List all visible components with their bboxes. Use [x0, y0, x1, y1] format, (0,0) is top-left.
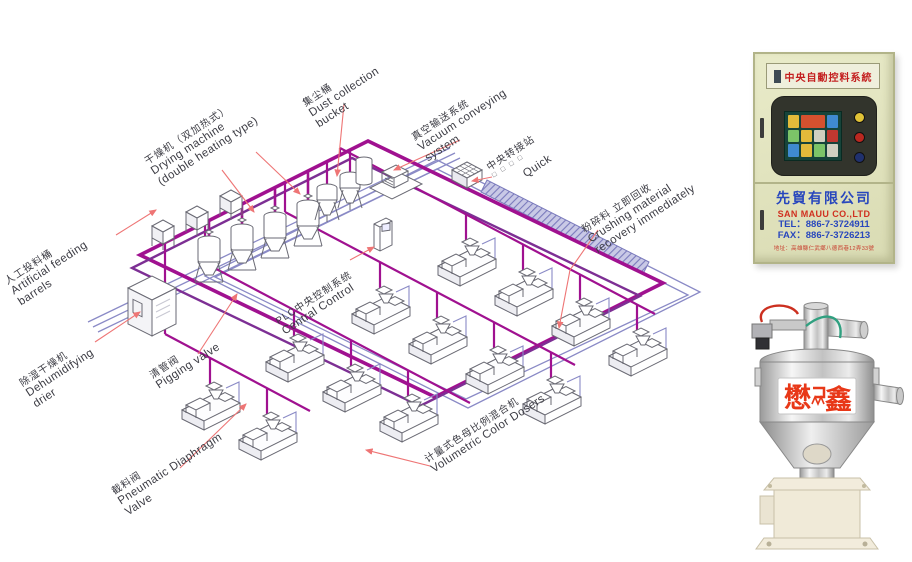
company-tel: TEL：886-7-3724911	[755, 219, 893, 230]
hopper-loader-photo: 懋 鑫	[712, 296, 912, 558]
blue-indicator-light	[854, 152, 865, 163]
cabinet-title-plate: 中央自動控料系統	[766, 63, 880, 89]
loader-top-piping	[804, 303, 868, 351]
company-name-en: SAN MAUU CO.,LTD	[755, 209, 893, 219]
yellow-indicator-light	[854, 112, 865, 123]
brand-char-left: 懋	[784, 383, 811, 413]
indicator-lights	[854, 112, 865, 163]
loader-cone	[760, 422, 874, 478]
company-info: 先貿有限公司 SAN MAUU CO.,LTD TEL：886-7-372491…	[755, 188, 893, 252]
control-cabinet-photo: 中央自動控料系統 先貿有限公司 SAN MAUU CO.,LTD TEL：886…	[753, 52, 895, 264]
molding-machine	[352, 286, 410, 334]
molding-machine	[466, 346, 524, 394]
loader-drum: 懋 鑫	[755, 349, 904, 422]
molding-machine	[239, 412, 297, 460]
dehumidifying-drier	[128, 276, 176, 336]
touch-screen	[784, 111, 842, 161]
cabinet-logo-chip	[774, 70, 781, 83]
equipment	[128, 157, 667, 460]
brand-char-right: 鑫	[825, 384, 852, 415]
page: 干燥机（双加热式） Drying machine (double heating…	[0, 0, 912, 562]
red-indicator-light	[854, 132, 865, 143]
cabinet-divider	[755, 182, 893, 184]
cabinet-title-text: 中央自動控料系統	[785, 69, 873, 84]
molding-machine	[609, 328, 667, 376]
molding-machine	[323, 364, 381, 412]
company-name-cn: 先貿有限公司	[755, 188, 893, 208]
molding-machine	[409, 316, 467, 364]
company-address: 地址：高雄縣仁武鄉八德西巷12弄33號	[755, 244, 893, 252]
molding-machine	[495, 268, 553, 316]
molding-machine	[552, 298, 610, 346]
hopper-loader-svg: 懋 鑫	[712, 296, 912, 558]
loader-base-stand	[756, 478, 878, 549]
molding-machine	[438, 238, 496, 286]
drying-hopper	[261, 206, 289, 258]
cabinet-handle	[760, 118, 764, 138]
company-fax: FAX：886-7-3726213	[755, 230, 893, 241]
cabinet-panel-frame	[771, 96, 877, 176]
plc-control-box	[374, 218, 392, 251]
